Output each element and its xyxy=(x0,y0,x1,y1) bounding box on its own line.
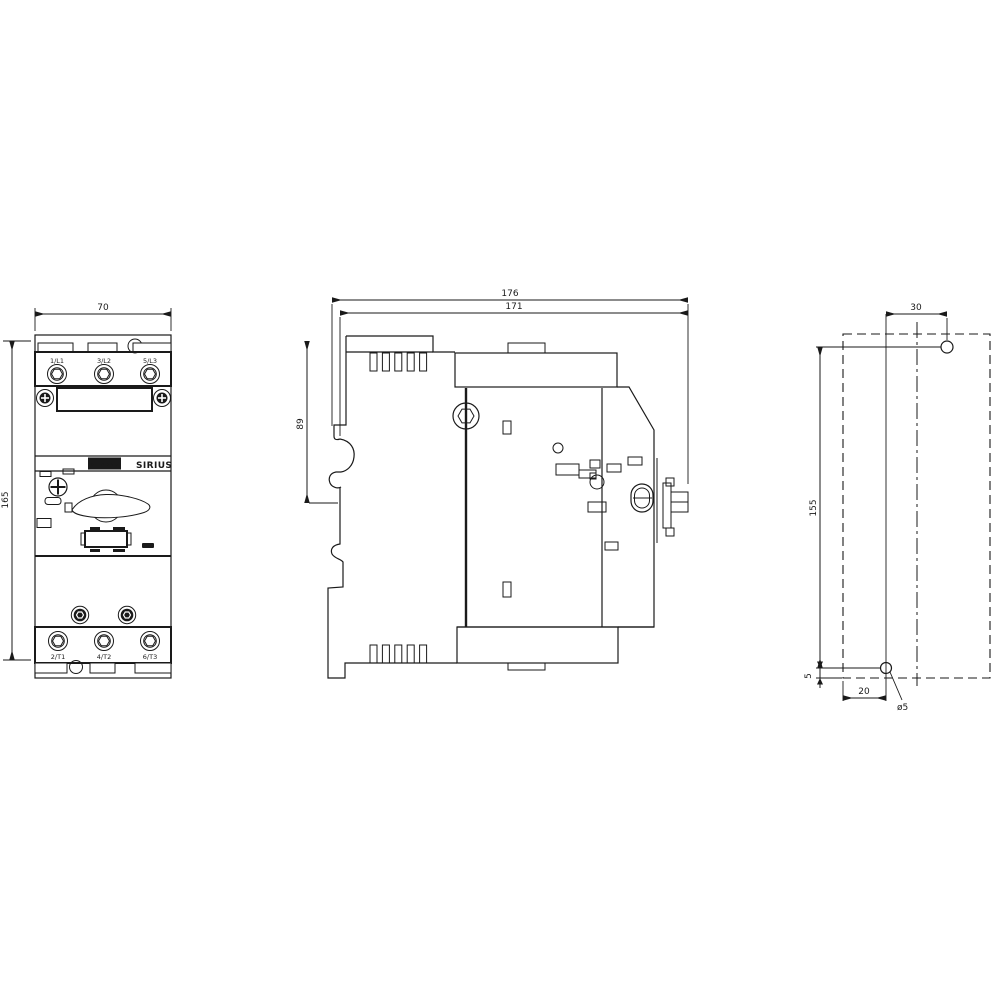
operator-shaft xyxy=(631,478,688,536)
dim-side-depth-label: 171 xyxy=(505,302,522,312)
terminal-label-4T2: 4/T2 xyxy=(97,653,111,661)
top-cap-block xyxy=(455,353,617,387)
handle-tip xyxy=(65,503,72,512)
dim-bottom-offset-label: 5 xyxy=(804,673,814,679)
dim-hole-pitch-y-label: 155 xyxy=(809,499,819,516)
terminal-screw-2T1 xyxy=(49,632,68,651)
fixing-screw-bottom-left xyxy=(71,606,88,623)
rotary-handle xyxy=(72,494,150,517)
terminal-label-2T1: 2/T1 xyxy=(51,653,65,661)
bottom-vent-slots xyxy=(370,645,427,663)
indicator-slot xyxy=(45,498,61,505)
operating-section xyxy=(37,469,154,552)
drilling-plan: 30 155 5 20 ø5 xyxy=(804,303,990,713)
bottom-base-block xyxy=(457,627,618,663)
technical-drawing-page: 70 165 1/L1 3/L2 5/L3 SIEMENS SIR xyxy=(0,0,1000,1000)
top-cap-tab xyxy=(508,343,545,353)
dim-side-overall-label: 176 xyxy=(501,289,518,299)
terminal-screw-4T2 xyxy=(95,632,114,651)
top-vent-slots xyxy=(370,353,427,371)
test-window xyxy=(37,519,51,528)
terminal-screw-3L2 xyxy=(95,365,114,384)
terminal-screw-1L1 xyxy=(48,365,67,384)
hole-diameter-label: ø5 xyxy=(897,703,908,713)
front-top-tabs xyxy=(38,339,171,353)
dim-left-offset-label: 20 xyxy=(858,687,870,697)
side-details xyxy=(503,421,642,597)
fixing-screw-bottom-right xyxy=(118,606,135,623)
side-outline xyxy=(328,336,657,678)
dim-side-rail-label: 89 xyxy=(296,418,306,430)
dim-hole-offset-x-label: 30 xyxy=(910,303,922,313)
terminal-screw-6T3 xyxy=(141,632,160,651)
hole-diameter-leader xyxy=(890,672,902,700)
terminal-label-1L1: 1/L1 xyxy=(50,357,64,365)
fixing-screw-top-left xyxy=(37,390,54,407)
mounting-hole-top xyxy=(941,341,953,353)
terminal-label-5L3: 5/L3 xyxy=(143,357,157,365)
front-window xyxy=(57,388,152,411)
dimension-drawing: 70 165 1/L1 3/L2 5/L3 SIEMENS SIR xyxy=(0,0,1000,1000)
bottom-base-tab xyxy=(508,663,545,670)
series-label: SIRIUS xyxy=(136,461,172,471)
rating-nameplate xyxy=(85,531,127,547)
terminal-label-6T3: 6/T3 xyxy=(143,653,157,661)
fixing-screw-top-right xyxy=(154,390,171,407)
terminal-label-3L2: 3/L2 xyxy=(97,357,111,365)
side-view: 176 171 89 xyxy=(296,289,688,678)
terminal-screw-5L3 xyxy=(141,365,160,384)
front-view: 70 165 1/L1 3/L2 5/L3 SIEMENS SIR xyxy=(1,303,172,678)
brand-logo-text: SIEMENS xyxy=(91,463,119,469)
dim-front-height-label: 165 xyxy=(1,491,11,508)
fine-print-marking xyxy=(142,543,154,548)
dim-front-width-label: 70 xyxy=(97,303,109,313)
